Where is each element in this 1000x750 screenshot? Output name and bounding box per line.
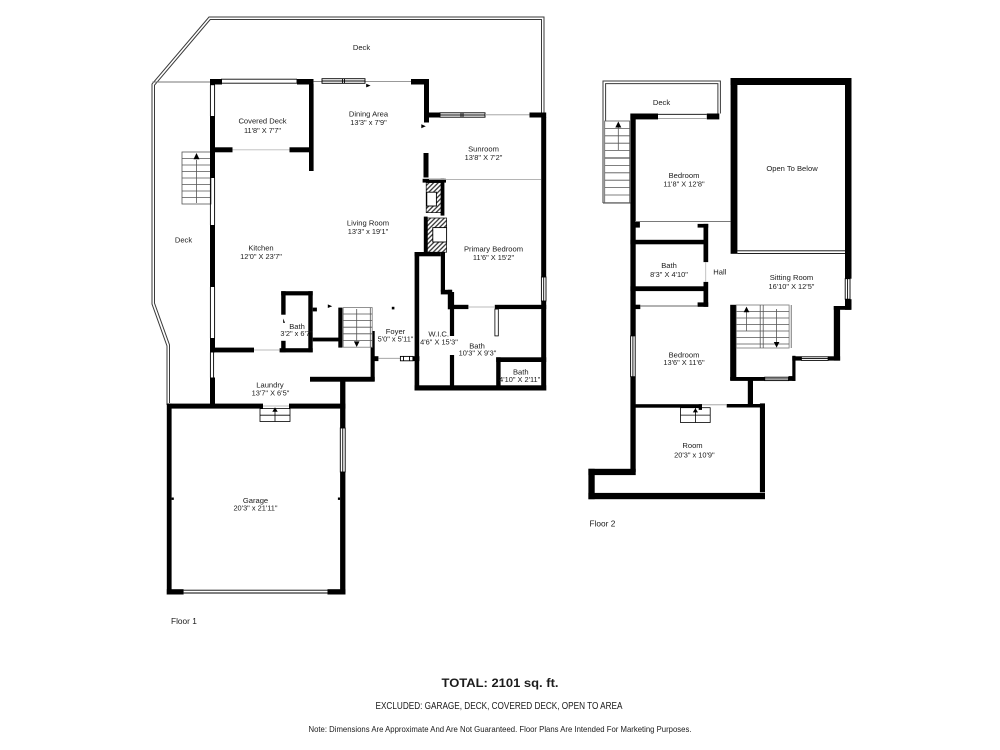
svg-text:Deck: Deck: [175, 236, 193, 245]
svg-text:11'6" X 15'2": 11'6" X 15'2": [473, 253, 515, 262]
svg-text:Bath: Bath: [661, 261, 677, 270]
svg-text:4'6" X 15'3": 4'6" X 15'3": [420, 338, 458, 347]
svg-text:Floor 2: Floor 2: [590, 519, 616, 529]
svg-text:Deck: Deck: [353, 43, 371, 52]
svg-text:Sitting Room: Sitting Room: [770, 273, 813, 282]
svg-text:11'8" X 12'8": 11'8" X 12'8": [663, 179, 705, 188]
svg-text:12'0" X 23'7": 12'0" X 23'7": [240, 252, 282, 261]
svg-text:16'10" X 12'5": 16'10" X 12'5": [769, 282, 815, 291]
svg-text:10'3" X 9'3": 10'3" X 9'3": [459, 349, 497, 358]
svg-text:EXCLUDED: GARAGE, DECK, COVERE: EXCLUDED: GARAGE, DECK, COVERED DECK, OP…: [376, 701, 623, 712]
svg-text:TOTAL: 2101 sq. ft.: TOTAL: 2101 sq. ft.: [442, 676, 559, 690]
svg-text:Note: Dimensions Are Approxima: Note: Dimensions Are Approximate And Are…: [309, 724, 692, 734]
svg-text:5'0" x 5'11": 5'0" x 5'11": [378, 335, 414, 344]
svg-text:13'6" X 11'6": 13'6" X 11'6": [663, 358, 705, 367]
svg-text:Room: Room: [682, 441, 702, 450]
svg-text:Kitchen: Kitchen: [248, 244, 273, 253]
svg-text:4'10" X 2'11": 4'10" X 2'11": [499, 375, 541, 384]
svg-text:13'3" x 7'9": 13'3" x 7'9": [350, 118, 387, 127]
svg-text:Deck: Deck: [653, 98, 671, 107]
svg-text:Floor 1: Floor 1: [171, 616, 197, 626]
svg-text:13'7" X 6'5": 13'7" X 6'5": [252, 388, 290, 397]
svg-text:8'3" X 4'10": 8'3" X 4'10": [650, 270, 688, 279]
svg-text:Hall: Hall: [713, 267, 726, 276]
svg-text:Covered Deck: Covered Deck: [238, 117, 286, 126]
svg-text:13'3" x 19'1": 13'3" x 19'1": [348, 227, 389, 236]
svg-text:11'8" X 7'7": 11'8" X 7'7": [244, 126, 281, 135]
svg-text:20'3" x 21'11": 20'3" x 21'11": [233, 504, 277, 513]
svg-text:3'2" x 6'7": 3'2" x 6'7": [280, 329, 313, 338]
svg-text:13'8" X 7'2": 13'8" X 7'2": [465, 153, 503, 162]
svg-text:20'3" x 10'9": 20'3" x 10'9": [674, 451, 715, 460]
svg-text:Open To Below: Open To Below: [766, 164, 818, 173]
